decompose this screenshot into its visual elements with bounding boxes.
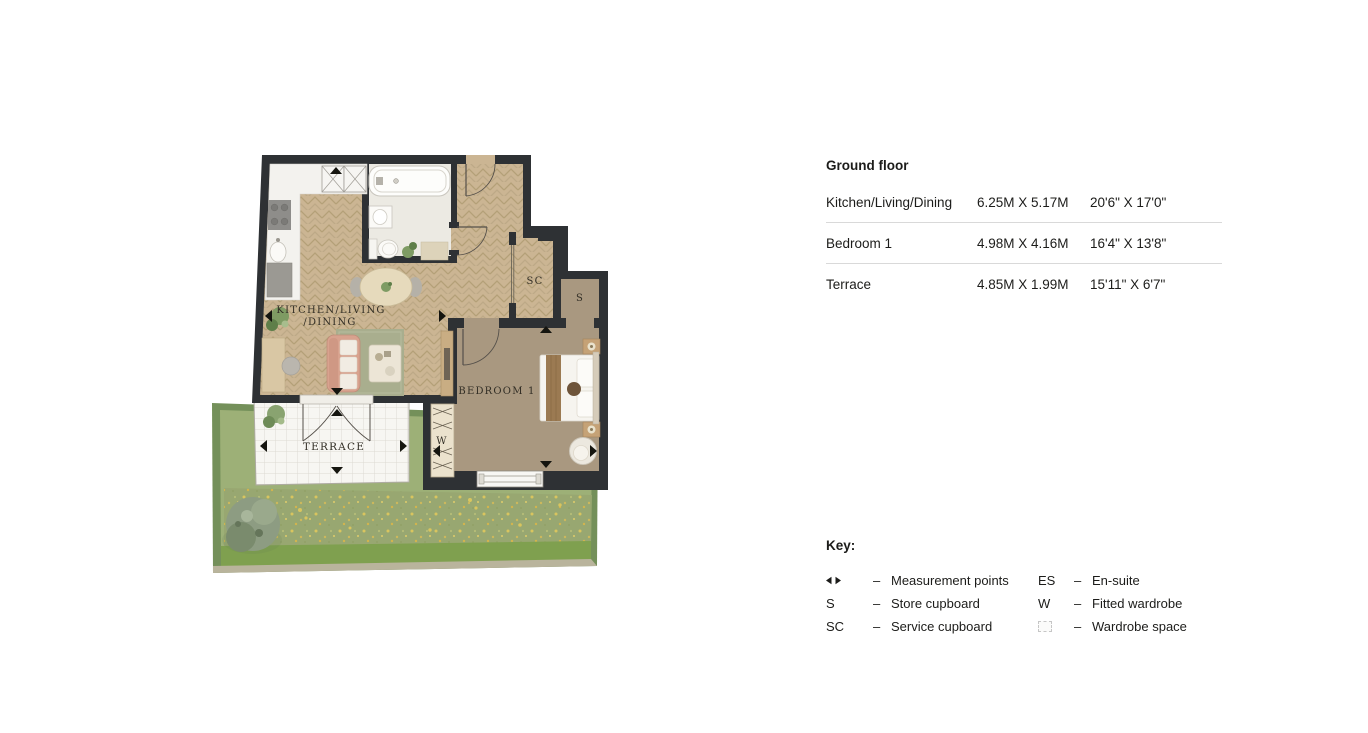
toilet bbox=[369, 239, 377, 259]
room-name: Terrace bbox=[826, 277, 977, 292]
key-title: Key: bbox=[826, 538, 1246, 553]
key-dash: – bbox=[873, 619, 891, 634]
key-label: Fitted wardrobe bbox=[1092, 596, 1246, 611]
key-label: Wardrobe space bbox=[1092, 619, 1246, 634]
ensuite-abbr: ES bbox=[1038, 573, 1074, 588]
key-dash: – bbox=[1074, 619, 1092, 634]
key-item: SC – Service cupboard bbox=[826, 615, 1038, 638]
table-row: Kitchen/Living/Dining 6.25M X 5.17M 20'6… bbox=[826, 182, 1222, 223]
key-legend: Key: – Measurement points S – Store cupb… bbox=[826, 538, 1246, 638]
bedroom-label: BEDROOM 1 bbox=[458, 386, 535, 397]
table-title: Ground floor bbox=[826, 156, 1222, 176]
key-item: S – Store cupboard bbox=[826, 592, 1038, 615]
key-item: – Wardrobe space bbox=[1038, 615, 1246, 638]
key-dash: – bbox=[873, 596, 891, 611]
key-item: W – Fitted wardrobe bbox=[1038, 592, 1246, 615]
key-dash: – bbox=[1074, 596, 1092, 611]
key-item: – Measurement points bbox=[826, 569, 1038, 592]
imperial-dimensions: 16'4" X 13'8" bbox=[1090, 236, 1222, 251]
key-dash: – bbox=[1074, 573, 1092, 588]
store-cupboard-label: S bbox=[576, 293, 584, 304]
entry-door-opening bbox=[466, 155, 495, 164]
store-cupboard-opening bbox=[566, 317, 594, 329]
table-row: Bedroom 1 4.98M X 4.16M 16'4" X 13'8" bbox=[826, 223, 1222, 264]
coffee-table bbox=[369, 345, 401, 382]
desk bbox=[262, 338, 285, 392]
imperial-dimensions: 15'11" X 6'7" bbox=[1090, 277, 1222, 292]
kitchen-sink bbox=[270, 242, 286, 262]
wardrobe-label: W bbox=[436, 436, 447, 447]
terrace-label: TERRACE bbox=[303, 441, 365, 453]
bed bbox=[540, 352, 599, 424]
metric-dimensions: 4.85M X 1.99M bbox=[977, 277, 1090, 292]
room-name: Kitchen/Living/Dining bbox=[826, 195, 977, 210]
key-dash: – bbox=[873, 573, 891, 588]
key-label: Store cupboard bbox=[891, 596, 1038, 611]
service-cupboard-abbr: SC bbox=[826, 619, 873, 634]
wardrobe-space-icon bbox=[1038, 621, 1074, 632]
bedroom-window bbox=[477, 471, 543, 487]
kitchen-appliance bbox=[267, 263, 292, 297]
metric-dimensions: 6.25M X 5.17M bbox=[977, 195, 1090, 210]
key-label: Service cupboard bbox=[891, 619, 1038, 634]
table-row: Terrace 4.85M X 1.99M 15'11" X 6'7" bbox=[826, 264, 1222, 304]
kitchen-living-dining-label-line2: /DINING bbox=[303, 317, 356, 328]
floorplan-page: KITCHEN/LIVING /DINING BEDROOM 1 TERRACE… bbox=[0, 0, 1368, 733]
desk-chair bbox=[282, 357, 300, 375]
metric-dimensions: 4.98M X 4.16M bbox=[977, 236, 1090, 251]
dimensions-table: Ground floor Kitchen/Living/Dining 6.25M… bbox=[826, 156, 1222, 304]
bedroom-door-opening bbox=[464, 318, 499, 329]
wardrobe-abbr: W bbox=[1038, 596, 1074, 611]
kitchen-living-dining-label: KITCHEN/LIVING bbox=[276, 305, 385, 316]
measurement-points-icon bbox=[826, 576, 873, 585]
imperial-dimensions: 20'6" X 17'0" bbox=[1090, 195, 1222, 210]
key-label: Measurement points bbox=[891, 573, 1038, 588]
room-name: Bedroom 1 bbox=[826, 236, 977, 251]
sofa bbox=[327, 335, 360, 392]
key-item: ES – En-suite bbox=[1038, 569, 1246, 592]
hob bbox=[268, 200, 291, 230]
key-label: En-suite bbox=[1092, 573, 1246, 588]
store-cupboard-abbr: S bbox=[826, 596, 873, 611]
service-cupboard-label: SC bbox=[527, 276, 544, 287]
